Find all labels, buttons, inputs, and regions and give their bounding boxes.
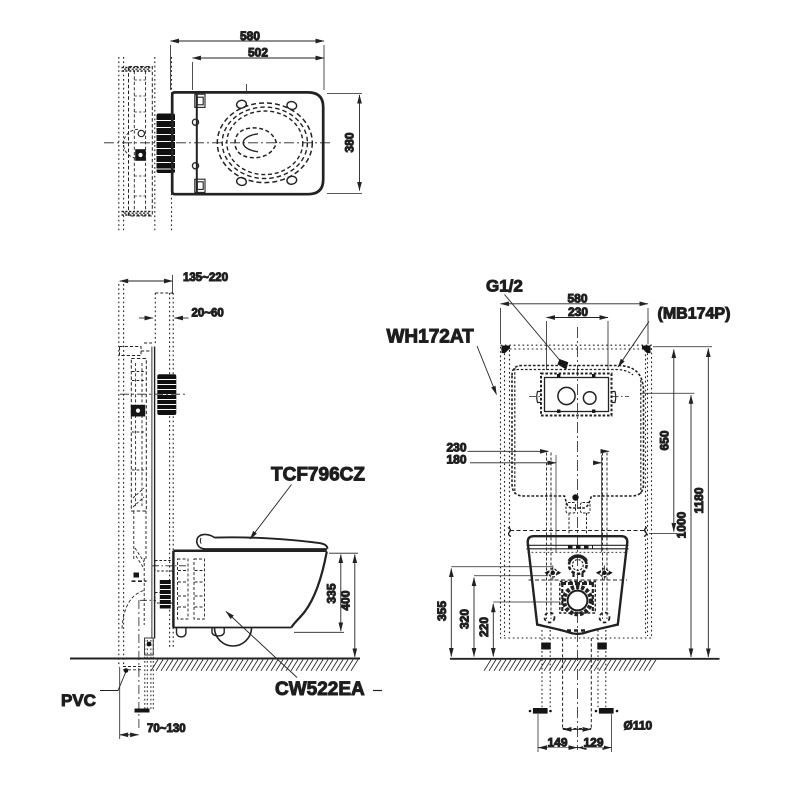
svg-text:G1/2: G1/2: [486, 277, 523, 296]
svg-text:650: 650: [657, 430, 671, 450]
svg-text:20~60: 20~60: [192, 308, 224, 320]
svg-text:70~130: 70~130: [147, 723, 186, 735]
svg-text:400: 400: [339, 590, 353, 610]
svg-text:355: 355: [435, 601, 449, 621]
svg-text:TCF796CZ: TCF796CZ: [271, 465, 365, 486]
svg-text:Ø110: Ø110: [624, 719, 653, 733]
svg-text:230: 230: [568, 305, 588, 319]
svg-text:WH172AT: WH172AT: [387, 327, 475, 348]
svg-text:580: 580: [240, 29, 260, 43]
svg-text:335: 335: [325, 583, 339, 603]
svg-text:(MB174P): (MB174P): [658, 306, 731, 323]
svg-text:502: 502: [248, 46, 268, 60]
svg-text:149: 149: [547, 736, 567, 750]
svg-text:180: 180: [447, 453, 467, 467]
svg-text:220: 220: [477, 617, 491, 637]
svg-text:580: 580: [567, 292, 587, 306]
svg-text:380: 380: [343, 132, 357, 152]
svg-text:135~220: 135~220: [183, 272, 228, 284]
svg-text:1180: 1180: [692, 487, 706, 513]
svg-text:320: 320: [458, 609, 472, 629]
svg-text:1000: 1000: [675, 511, 689, 538]
svg-text:129: 129: [583, 736, 603, 750]
svg-text:CW522EA: CW522EA: [275, 679, 365, 700]
svg-text:PVC: PVC: [61, 691, 96, 710]
